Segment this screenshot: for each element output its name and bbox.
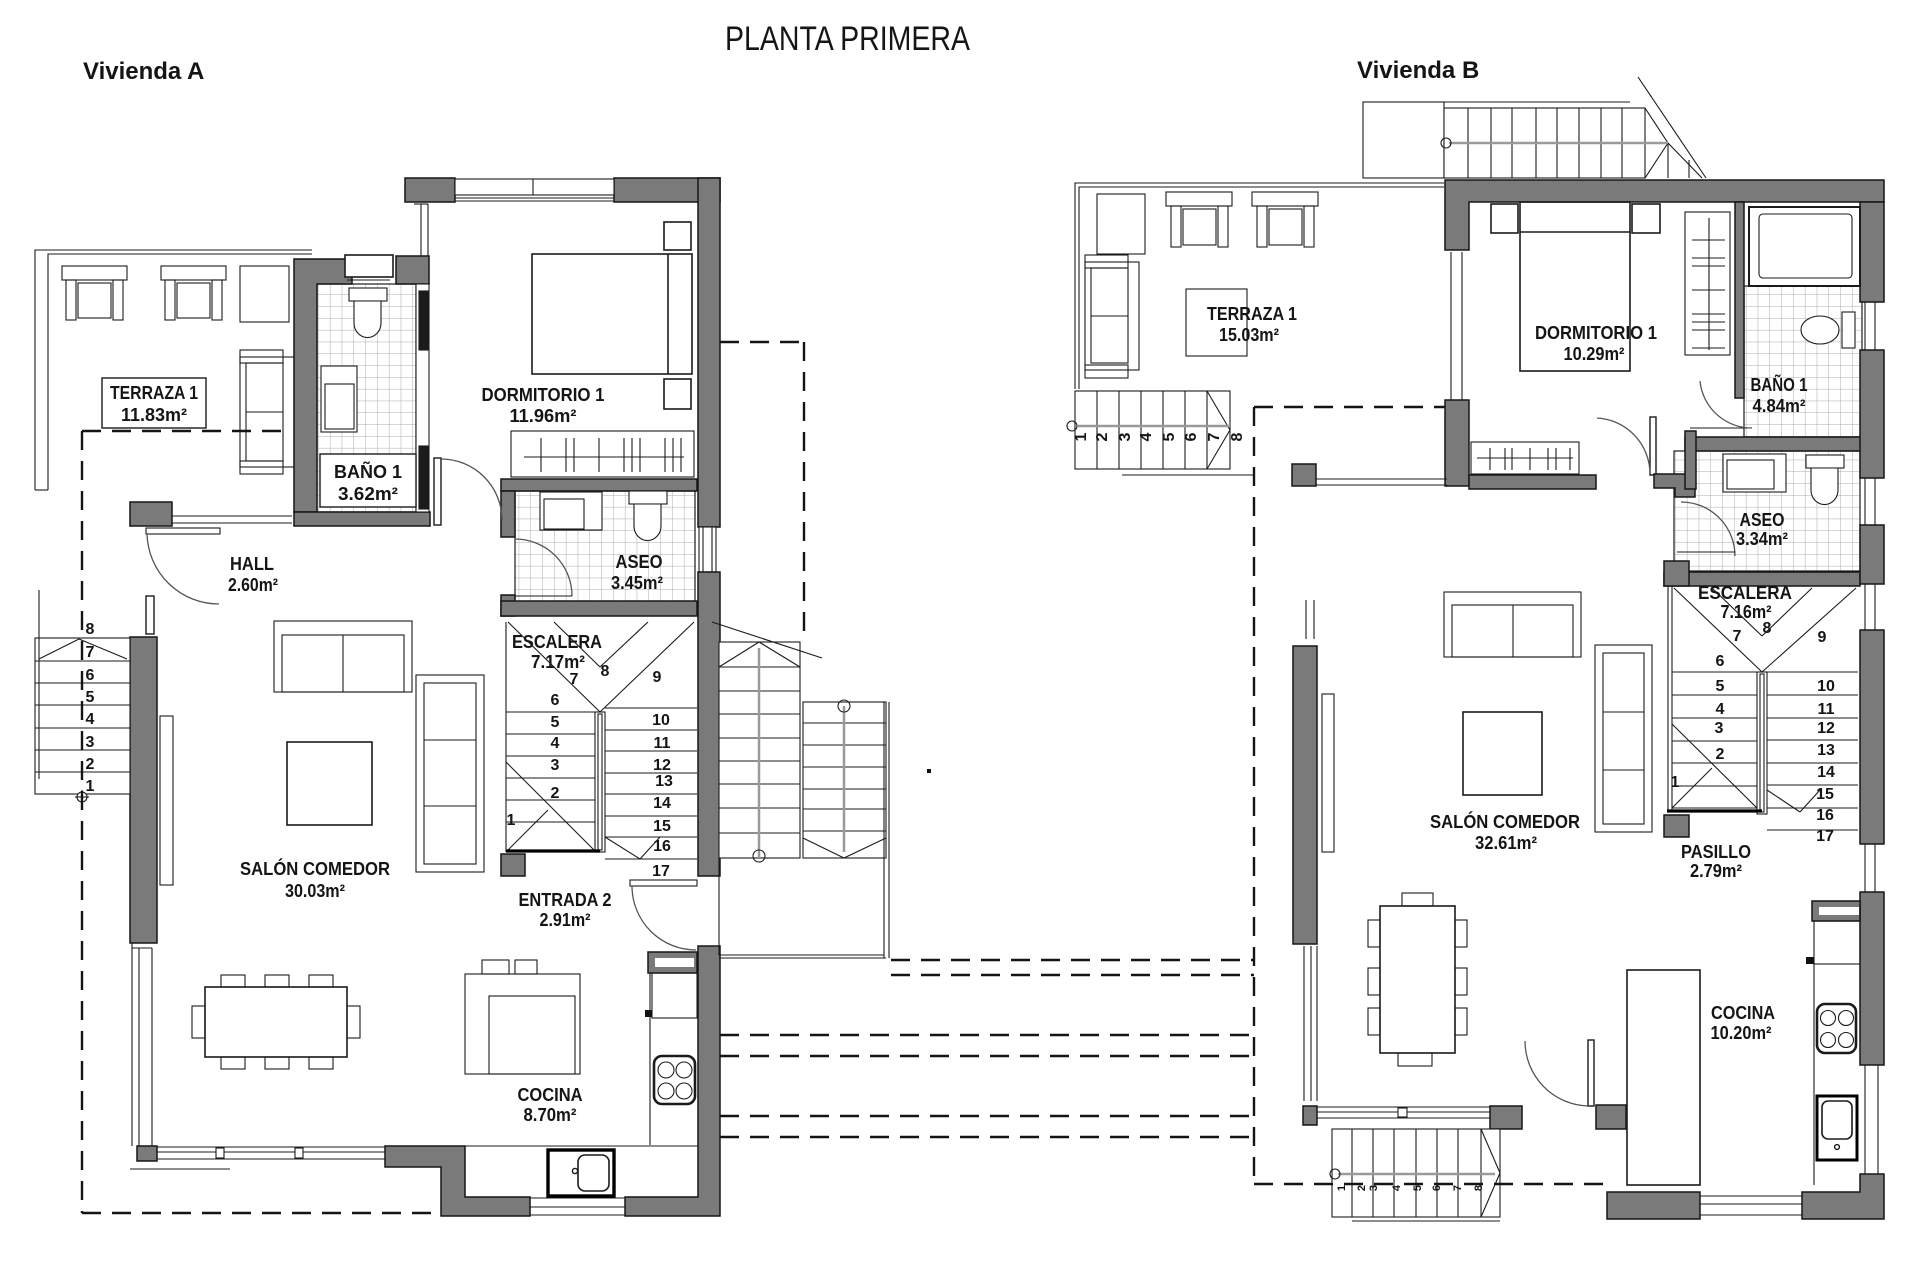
svg-text:7.17m²: 7.17m² <box>531 652 585 672</box>
svg-text:11.96m²: 11.96m² <box>510 406 577 426</box>
svg-text:3: 3 <box>1715 720 1724 737</box>
svg-text:3.45m²: 3.45m² <box>611 573 663 593</box>
svg-text:30.03m²: 30.03m² <box>285 881 345 901</box>
svg-text:DORMITORIO 1: DORMITORIO 1 <box>1535 323 1657 343</box>
svg-text:4: 4 <box>1138 432 1155 441</box>
svg-text:7: 7 <box>1733 628 1742 645</box>
svg-text:COCINA: COCINA <box>1711 1003 1775 1023</box>
svg-text:2: 2 <box>1356 1185 1368 1191</box>
svg-text:14: 14 <box>653 795 671 812</box>
svg-text:2.79m²: 2.79m² <box>1690 861 1742 881</box>
svg-text:9: 9 <box>1818 629 1827 646</box>
svg-text:8: 8 <box>1473 1185 1485 1191</box>
svg-text:6: 6 <box>86 667 95 684</box>
svg-text:6: 6 <box>551 692 560 709</box>
svg-text:ESCALERA: ESCALERA <box>512 632 602 652</box>
svg-text:4: 4 <box>86 711 95 728</box>
svg-text:3: 3 <box>86 734 95 751</box>
svg-text:14: 14 <box>1817 764 1835 781</box>
svg-text:2.91m²: 2.91m² <box>540 910 591 930</box>
svg-text:7: 7 <box>1206 432 1223 441</box>
svg-text:2.60m²: 2.60m² <box>228 575 278 595</box>
svg-text:Vivienda B: Vivienda B <box>1357 57 1479 84</box>
svg-text:BAÑO 1: BAÑO 1 <box>1751 374 1808 395</box>
svg-text:3: 3 <box>551 757 560 774</box>
svg-text:1: 1 <box>1073 432 1090 441</box>
svg-text:COCINA: COCINA <box>518 1085 583 1105</box>
svg-text:3.34m²: 3.34m² <box>1736 529 1788 549</box>
svg-text:11.83m²: 11.83m² <box>121 405 187 425</box>
svg-text:16: 16 <box>1816 807 1834 824</box>
svg-text:BAÑO 1: BAÑO 1 <box>334 461 402 482</box>
svg-text:2: 2 <box>551 785 560 802</box>
svg-text:1: 1 <box>1671 774 1680 791</box>
svg-text:10: 10 <box>1817 678 1835 695</box>
svg-text:13: 13 <box>1817 742 1835 759</box>
svg-text:3: 3 <box>1117 432 1134 441</box>
svg-text:6: 6 <box>1716 653 1725 670</box>
svg-text:5: 5 <box>1716 678 1725 695</box>
svg-text:17: 17 <box>652 863 670 880</box>
svg-text:1: 1 <box>507 812 516 829</box>
svg-text:8: 8 <box>1229 432 1246 441</box>
svg-text:12: 12 <box>1817 720 1835 737</box>
svg-text:ESCALERA: ESCALERA <box>1698 583 1792 603</box>
svg-text:ENTRADA 2: ENTRADA 2 <box>519 890 612 910</box>
svg-text:10: 10 <box>652 712 670 729</box>
svg-text:10.20m²: 10.20m² <box>1711 1023 1772 1043</box>
svg-text:1: 1 <box>86 778 95 795</box>
svg-text:PASILLO: PASILLO <box>1681 842 1751 862</box>
svg-text:SALÓN COMEDOR: SALÓN COMEDOR <box>1430 811 1580 832</box>
svg-text:17: 17 <box>1816 828 1834 845</box>
svg-text:Vivienda A: Vivienda A <box>83 58 204 85</box>
svg-text:11: 11 <box>1818 701 1835 718</box>
svg-text:6: 6 <box>1431 1185 1443 1191</box>
svg-text:8: 8 <box>86 621 95 638</box>
svg-text:12: 12 <box>653 757 671 774</box>
svg-text:7.16m²: 7.16m² <box>1721 602 1772 622</box>
svg-text:3.62m²: 3.62m² <box>338 484 398 504</box>
svg-text:TERRAZA 1: TERRAZA 1 <box>110 383 198 403</box>
svg-text:5: 5 <box>86 689 95 706</box>
svg-text:7: 7 <box>86 644 95 661</box>
svg-text:6: 6 <box>1183 432 1200 441</box>
svg-text:15.03m²: 15.03m² <box>1219 325 1279 345</box>
svg-text:5: 5 <box>1161 432 1178 441</box>
svg-text:8: 8 <box>1763 620 1772 637</box>
svg-text:PLANTA PRIMERA: PLANTA PRIMERA <box>725 20 970 58</box>
svg-text:7: 7 <box>1452 1185 1464 1191</box>
svg-text:TERRAZA 1: TERRAZA 1 <box>1207 304 1297 324</box>
svg-text:13: 13 <box>655 773 673 790</box>
svg-text:8.70m²: 8.70m² <box>524 1105 577 1125</box>
svg-text:DORMITORIO 1: DORMITORIO 1 <box>482 385 605 405</box>
svg-text:2: 2 <box>1094 432 1111 441</box>
svg-text:4.84m²: 4.84m² <box>1753 396 1806 416</box>
svg-text:HALL: HALL <box>230 554 274 574</box>
svg-text:4: 4 <box>1716 701 1725 718</box>
svg-text:11: 11 <box>654 735 671 752</box>
svg-text:2: 2 <box>1716 746 1725 763</box>
svg-text:5: 5 <box>551 714 560 731</box>
svg-text:16: 16 <box>653 838 671 855</box>
svg-text:9: 9 <box>653 669 662 686</box>
svg-text:3: 3 <box>1368 1185 1380 1191</box>
svg-text:32.61m²: 32.61m² <box>1475 833 1537 853</box>
svg-text:5: 5 <box>1412 1185 1424 1191</box>
svg-text:7: 7 <box>570 671 579 688</box>
svg-text:10.29m²: 10.29m² <box>1564 344 1625 364</box>
svg-text:4: 4 <box>551 735 560 752</box>
svg-text:ASEO: ASEO <box>616 552 663 572</box>
svg-text:8: 8 <box>601 663 610 680</box>
svg-text:2: 2 <box>86 756 95 773</box>
svg-text:SALÓN COMEDOR: SALÓN COMEDOR <box>240 858 390 879</box>
svg-text:15: 15 <box>653 818 671 835</box>
svg-text:ASEO: ASEO <box>1740 510 1785 530</box>
svg-text:1: 1 <box>1336 1185 1348 1191</box>
svg-text:15: 15 <box>1816 786 1834 803</box>
